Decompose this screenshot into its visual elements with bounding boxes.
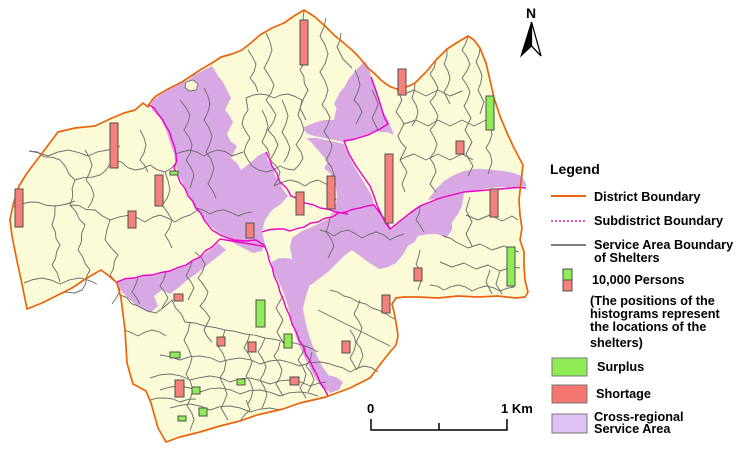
svg-text:Shortage: Shortage: [596, 387, 651, 401]
svg-text:Legend: Legend: [550, 161, 600, 177]
svg-text:shelters): shelters): [590, 336, 643, 350]
svg-text:Subdistrict Boundary: Subdistrict Boundary: [594, 214, 723, 228]
svg-text:(The positions of the: (The positions of the: [590, 294, 715, 308]
svg-text:histograms represent: histograms represent: [590, 307, 721, 321]
svg-text:0: 0: [367, 401, 374, 416]
svg-text:the locations of the: the locations of the: [590, 320, 706, 334]
svg-text:Surplus: Surplus: [597, 360, 644, 374]
svg-text:N: N: [526, 5, 536, 21]
svg-text:of Shelters: of Shelters: [594, 251, 660, 265]
svg-text:Service Area Boundary: Service Area Boundary: [594, 238, 733, 252]
svg-text:Service Area: Service Area: [594, 422, 671, 436]
svg-text:10,000 Persons: 10,000 Persons: [592, 273, 684, 287]
svg-text:1 Km: 1 Km: [501, 401, 533, 416]
svg-text:District Boundary: District Boundary: [594, 190, 700, 204]
